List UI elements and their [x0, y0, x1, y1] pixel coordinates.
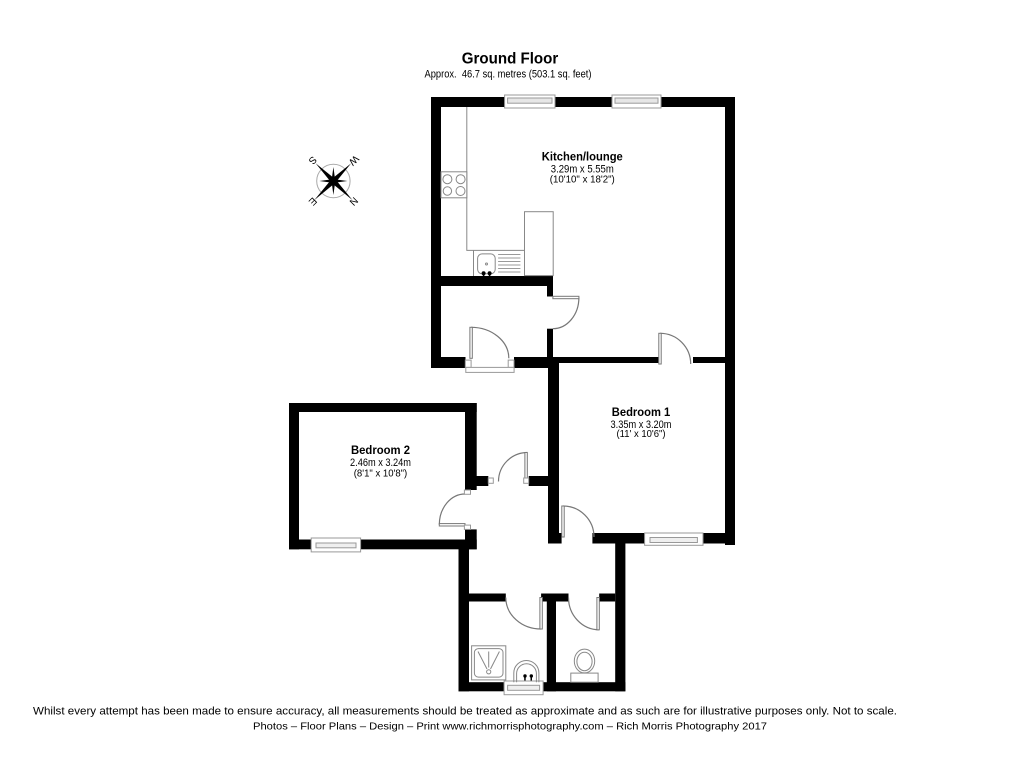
svg-text:(8'1" x 10'8"): (8'1" x 10'8") — [354, 469, 408, 480]
svg-text:Photos – Floor Plans – Design: Photos – Floor Plans – Design – Print ww… — [253, 720, 767, 732]
svg-text:Bedroom 1: Bedroom 1 — [612, 407, 671, 419]
svg-text:Approx. 46.7 sq. metres (503.: Approx. 46.7 sq. metres (503.1 sq. feet) — [425, 69, 592, 81]
svg-text:Kitchen/lounge: Kitchen/lounge — [542, 151, 623, 163]
svg-text:Whilst every attempt has been: Whilst every attempt has been made to en… — [33, 706, 897, 718]
svg-text:(11' x 10'6"): (11' x 10'6") — [617, 429, 666, 440]
svg-text:W: W — [346, 153, 361, 168]
svg-text:2.46m x 3.24m: 2.46m x 3.24m — [350, 457, 411, 469]
svg-text:E: E — [306, 195, 319, 208]
svg-text:Ground Floor: Ground Floor — [462, 51, 559, 68]
svg-text:(10'10" x 18'2"): (10'10" x 18'2") — [550, 174, 615, 185]
svg-text:Bedroom 2: Bedroom 2 — [351, 445, 410, 457]
svg-text:S: S — [306, 154, 319, 167]
